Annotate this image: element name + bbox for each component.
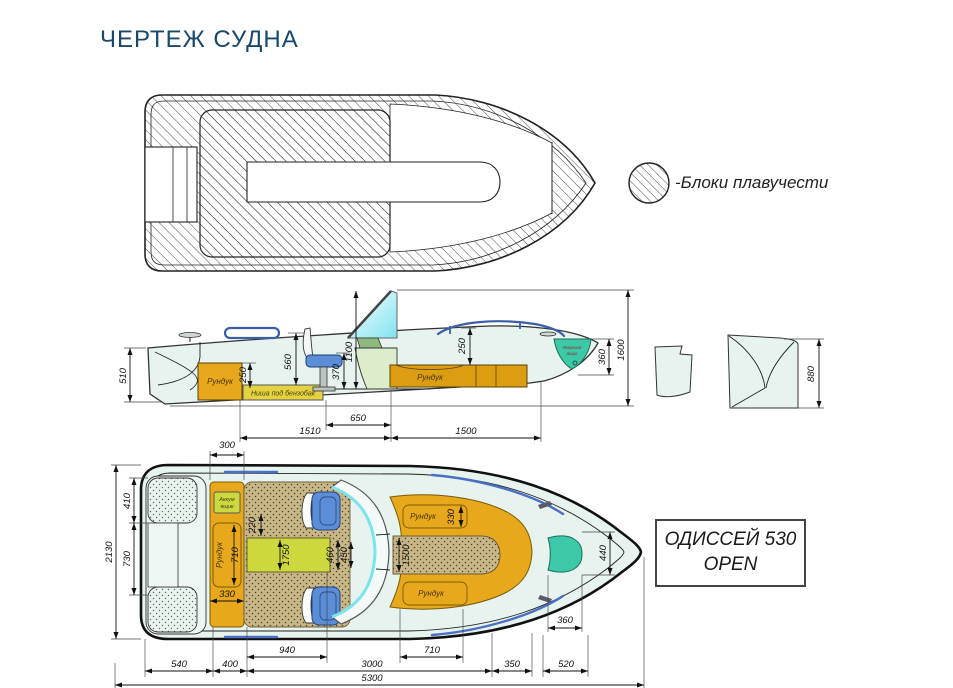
svg-text:1500: 1500 xyxy=(401,544,412,566)
svg-text:370: 370 xyxy=(331,363,342,380)
svg-text:1600: 1600 xyxy=(616,339,627,361)
svg-text:410: 410 xyxy=(122,492,133,509)
svg-text:ящик: ящик xyxy=(219,504,234,510)
side-locker-right-label: Рундук xyxy=(417,373,444,382)
center-slot xyxy=(247,162,500,202)
dim-350: 350 xyxy=(492,659,532,671)
dim-400: 400 xyxy=(213,659,247,671)
svg-text:360: 360 xyxy=(597,348,608,365)
svg-text:540: 540 xyxy=(171,659,188,670)
svg-text:Рундук: Рундук xyxy=(410,512,437,521)
transom-section xyxy=(655,346,692,397)
svg-text:400: 400 xyxy=(222,659,239,670)
plan-view: Аккум ящик Рундук 710 330 220 1750 460 xyxy=(110,435,710,688)
seat-top xyxy=(302,492,340,530)
port-locker: Рундук 710 xyxy=(213,523,241,587)
side-view: Рундук Ниша под бензобак Рундук xyxy=(120,282,840,460)
svg-text:220: 220 xyxy=(247,516,258,534)
side-locker-right: Рундук xyxy=(390,365,527,387)
svg-text:880: 880 xyxy=(806,365,817,382)
model-name: ОДИССЕЙ 530 xyxy=(665,528,797,553)
anchor-box-label-1: Якорный xyxy=(562,344,582,350)
svg-text:460: 460 xyxy=(325,546,336,563)
dim-710-bottom: 710 xyxy=(400,645,463,657)
dim-940: 940 xyxy=(247,645,327,657)
page-title: ЧЕРТЕЖ СУДНА xyxy=(100,26,299,54)
windshield-side xyxy=(348,291,397,338)
dim-650: 650 xyxy=(326,413,391,425)
section-view: 880 xyxy=(655,335,824,408)
svg-text:250: 250 xyxy=(457,337,468,355)
bow-cleat xyxy=(540,332,556,336)
svg-text:650: 650 xyxy=(350,413,367,424)
svg-text:330: 330 xyxy=(446,508,457,525)
dim-5300: 5300 xyxy=(115,673,644,685)
legend: -Блоки плавучести xyxy=(627,161,828,205)
stern-bench xyxy=(146,476,206,634)
buoyancy-legend-swatch xyxy=(627,161,671,205)
dim-540: 540 xyxy=(145,659,213,671)
model-label-box: ОДИССЕЙ 530 OPEN xyxy=(655,519,806,587)
hull-top-view xyxy=(145,95,595,271)
svg-text:3000: 3000 xyxy=(361,659,383,670)
svg-text:1100: 1100 xyxy=(344,341,355,362)
grab-handle xyxy=(225,328,279,338)
svg-text:360: 360 xyxy=(557,615,574,626)
drawing-canvas: ЧЕРТЕЖ СУДНА xyxy=(0,0,953,688)
legend-label: -Блоки плавучести xyxy=(675,173,828,193)
anchor-box-plan xyxy=(548,536,582,572)
side-locker-left-label: Рундук xyxy=(207,377,234,386)
svg-text:510: 510 xyxy=(118,367,129,384)
walkway: 1500 xyxy=(393,536,500,574)
svg-text:350: 350 xyxy=(504,659,521,670)
dashboard xyxy=(357,338,382,348)
stern-cushion-top xyxy=(148,478,197,523)
stern-cushion-bottom xyxy=(148,587,197,632)
svg-text:250: 250 xyxy=(238,366,249,384)
svg-text:730: 730 xyxy=(122,550,133,567)
bow-section xyxy=(728,335,798,408)
stern-middle-section xyxy=(148,523,178,587)
transom-box xyxy=(145,147,197,222)
svg-text:300: 300 xyxy=(219,440,236,451)
svg-text:330: 330 xyxy=(219,589,236,600)
svg-text:710: 710 xyxy=(230,546,241,563)
svg-text:710: 710 xyxy=(424,645,441,656)
stern-cleat xyxy=(179,333,201,343)
cockpit-console: 1750 xyxy=(247,538,330,572)
top-view xyxy=(140,85,610,280)
svg-text:520: 520 xyxy=(558,659,575,670)
model-variant: OPEN xyxy=(704,553,758,578)
svg-text:1750: 1750 xyxy=(281,544,292,566)
svg-text:Рундук: Рундук xyxy=(418,589,445,598)
svg-text:940: 940 xyxy=(279,645,296,656)
svg-text:560: 560 xyxy=(283,353,294,370)
fuel-tank-niche-label: Ниша под бензобак xyxy=(251,390,316,398)
svg-text:2130: 2130 xyxy=(104,541,115,564)
battery-box: Аккум ящик xyxy=(214,492,240,513)
svg-text:450: 450 xyxy=(339,546,350,563)
dim-520: 520 xyxy=(543,659,588,671)
svg-text:5300: 5300 xyxy=(361,673,383,684)
anchor-box-label-2: ящик xyxy=(565,351,578,356)
svg-text:Аккум: Аккум xyxy=(218,497,235,503)
svg-text:Рундук: Рундук xyxy=(215,541,224,568)
svg-text:440: 440 xyxy=(598,544,609,561)
dim-3000: 3000 xyxy=(247,659,492,671)
